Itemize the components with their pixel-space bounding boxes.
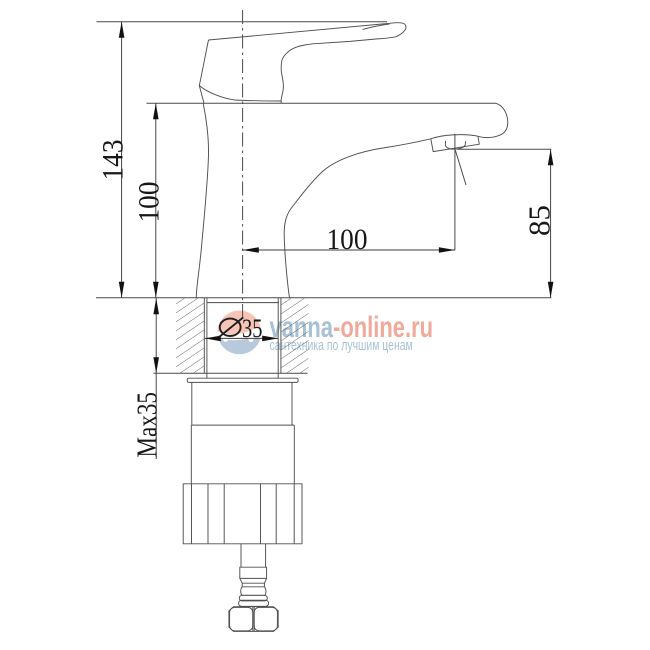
svg-text:100: 100	[133, 182, 166, 223]
svg-text:Max35: Max35	[132, 392, 164, 458]
svg-text:85: 85	[523, 205, 557, 236]
svg-text:143: 143	[97, 140, 130, 181]
svg-text:35: 35	[242, 313, 263, 343]
svg-text:100: 100	[327, 223, 368, 256]
